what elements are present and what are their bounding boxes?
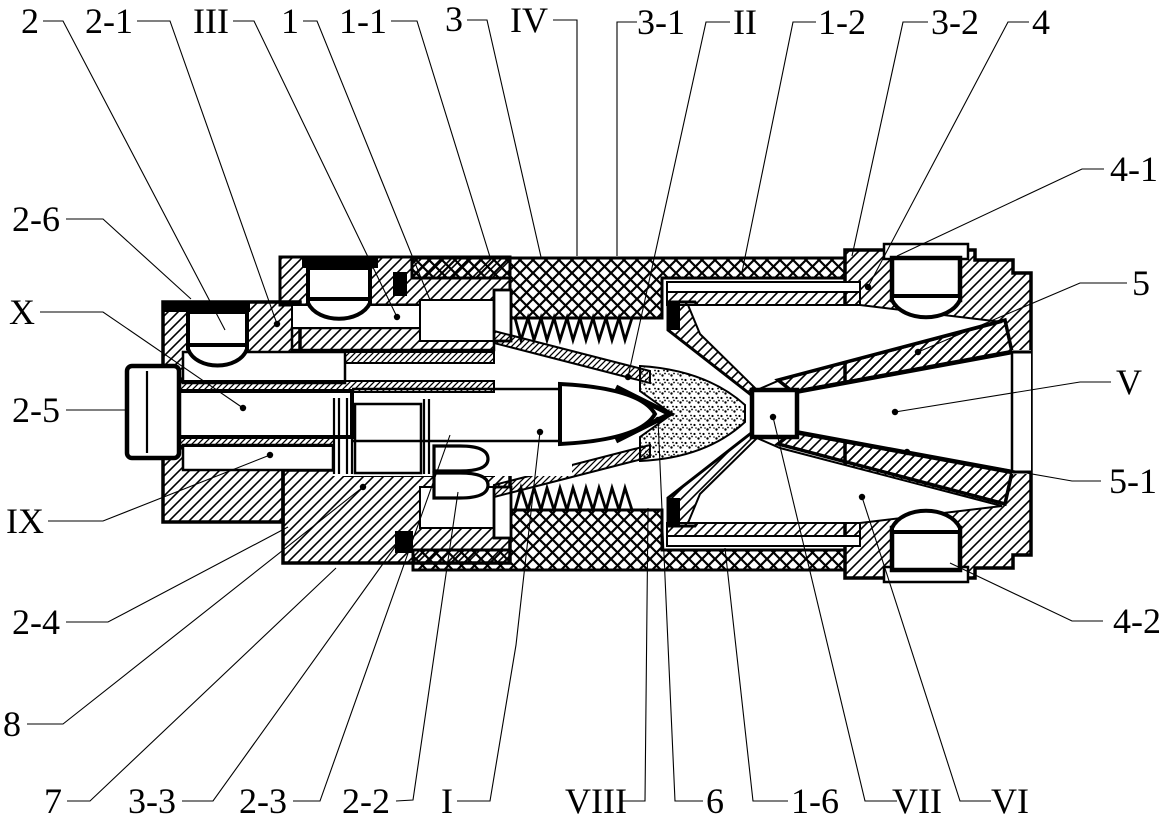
callout-label-II: II <box>733 2 757 42</box>
callout-label-2: 2 <box>21 1 39 41</box>
callout-label-2-3: 2-3 <box>239 781 287 821</box>
cone-exit <box>1012 350 1031 474</box>
leader-dot <box>394 314 400 320</box>
leader-dot <box>240 405 246 411</box>
tube-top <box>667 282 860 292</box>
callout-label-2-2: 2-2 <box>342 781 390 821</box>
bolt-right-bottom <box>884 511 968 582</box>
callout-label-VI: VI <box>991 781 1029 821</box>
callout-label-2-4: 2-4 <box>12 602 60 642</box>
callout-label-I: I <box>441 781 453 821</box>
patent-figure-page: 22-1III11-13IV3-1II1-23-244-15V5-14-22-6… <box>0 0 1170 822</box>
bolt-right-top <box>884 244 968 317</box>
callout-label-III: III <box>193 1 229 41</box>
leader-dot <box>537 429 543 435</box>
callout-label-VIII: VIII <box>565 781 627 821</box>
patent-figure-svg: 22-1III11-13IV3-1II1-23-244-15V5-14-22-6… <box>0 0 1170 822</box>
bolt-top <box>302 257 378 319</box>
callout-label-4-2: 4-2 <box>1113 601 1161 641</box>
callout-label-2-5: 2-5 <box>12 390 60 430</box>
leader-dot <box>770 414 776 420</box>
callout-label-V: V <box>1116 362 1142 402</box>
callout-label-5-1: 5-1 <box>1109 461 1157 501</box>
callout-label-1-1: 1-1 <box>339 1 387 41</box>
callout-label-IV: IV <box>510 0 548 40</box>
callout-label-3-2: 3-2 <box>931 2 979 42</box>
leader-dot <box>859 494 865 500</box>
callout-label-1: 1 <box>281 1 299 41</box>
tube-wall-bottom <box>667 523 860 536</box>
callout-label-1-2: 1-2 <box>818 2 866 42</box>
callout-label-VII: VII <box>892 781 942 821</box>
callout-label-2-6: 2-6 <box>12 199 60 239</box>
callout-label-3-1: 3-1 <box>637 2 685 42</box>
callout-label-8: 8 <box>3 704 21 744</box>
spring-chamber-top <box>420 300 494 341</box>
callout-label-3: 3 <box>445 0 463 39</box>
leader-dot <box>892 409 898 415</box>
callout-label-5: 5 <box>1132 263 1150 303</box>
callout-label-2-1: 2-1 <box>85 1 133 41</box>
leader-dot <box>274 321 280 327</box>
callout-label-3-3: 3-3 <box>128 781 176 821</box>
leader-dot <box>904 449 910 455</box>
left-nut <box>127 366 179 458</box>
leader-dot <box>655 417 661 423</box>
callout-label-X: X <box>9 292 35 332</box>
lower-left-chamber <box>183 445 333 470</box>
callout-label-1-6: 1-6 <box>791 781 839 821</box>
leader-dot <box>267 452 273 458</box>
leader-dot <box>865 284 871 290</box>
callout-label-4-1: 4-1 <box>1110 149 1158 189</box>
leader-dot <box>625 374 631 380</box>
callout-label-7: 7 <box>44 781 62 821</box>
leader-dot <box>360 484 366 490</box>
throat <box>752 390 797 437</box>
valve-lobe-lower <box>434 473 488 498</box>
tube-wall-top <box>667 292 860 305</box>
tube-bottom <box>667 536 860 546</box>
leader-dot <box>915 349 921 355</box>
callout-label-6: 6 <box>706 781 724 821</box>
callout-label-IX: IX <box>6 501 44 541</box>
callout-label-4: 4 <box>1032 2 1050 42</box>
